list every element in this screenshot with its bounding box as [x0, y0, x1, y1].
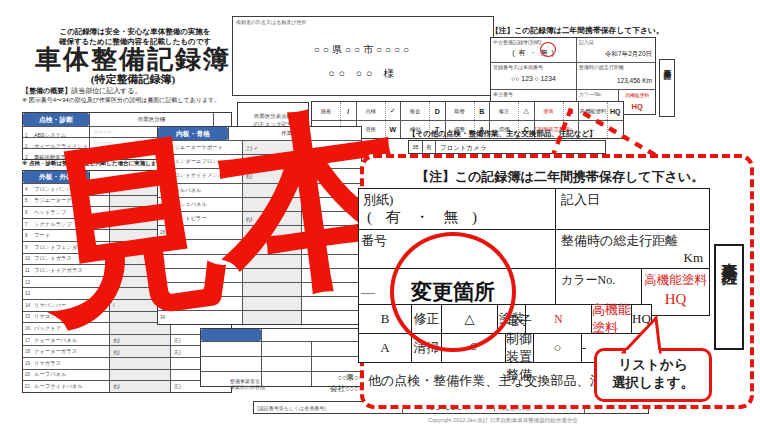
row-number: 7	[25, 222, 34, 227]
used-record-cell: 中古整備記録簿(別紙) ( 有 ・ 無 )	[491, 38, 576, 62]
row-label: クォーターガラス	[34, 348, 77, 355]
keep-note: 【注】この記録簿は二年間携帯保存して下さい。	[491, 25, 664, 36]
callout-number-label: 番号	[361, 232, 387, 250]
mileage-value: 123,456 Km	[617, 77, 652, 84]
mileage-cell: 整備時の総走行距離 123,456 Km	[577, 62, 655, 89]
used-record-label: 中古整備記録簿(別紙)	[493, 39, 541, 45]
business-name-line2: 会社○○○○	[268, 383, 363, 394]
work-mark-1: 右)	[109, 346, 170, 357]
row-number: 21	[25, 384, 34, 389]
business-name-line1: ○○県○○	[268, 372, 363, 383]
office-copy-tab-label: 事業所控	[662, 63, 672, 67]
callout-attachment-label: 別紙)	[363, 191, 393, 209]
reg-no-cell: 登録番号又は車両番号 ○○ 123 ○ 1234	[491, 62, 576, 89]
bubble-tail	[612, 314, 676, 356]
row-label: ルーフサイドパネル	[34, 383, 83, 390]
work-mark-1: 右)	[109, 381, 170, 392]
callout-legend-cell: ○	[533, 334, 581, 362]
row-number: 16	[25, 326, 34, 331]
callout-legend-cell: N	[525, 305, 591, 333]
overview-label: 【整備の概要】	[22, 87, 71, 94]
vehicle-maintenance-record-page: この記録簿は安全・安心な車体整備の実施を 確保するために整備内容を記載したもので…	[0, 0, 760, 448]
used-record-options[interactable]: ( 有 ・ 無 )	[491, 48, 576, 58]
work-mark-2	[301, 311, 361, 324]
row-number: 15	[25, 314, 34, 319]
callout-entry-date-cell: 記入日	[555, 189, 709, 229]
row-number: 14	[25, 303, 34, 308]
sample-watermark: 見本	[26, 97, 413, 334]
work-mark-1	[109, 358, 170, 369]
others-row-no: 35	[409, 141, 422, 153]
callout-mileage-unit: Km	[684, 250, 704, 266]
overview-line: 【整備の概要】該当部位に記入する。	[22, 86, 142, 96]
entry-date-cell: 記入日 令和7年2月20日	[577, 38, 655, 62]
overview-text: 該当部位に記入する。	[71, 87, 142, 94]
callout-keep-note: 【注】この記録簿は二年間携帯保存して下さい。	[416, 168, 704, 186]
customer-box: 依頼者の氏名又は名称及び住所 ○○県○○市○○○○ ○○ ○○ 様	[232, 16, 494, 96]
row-number: 13	[25, 291, 34, 296]
row-number: 18	[25, 349, 34, 354]
callout-color-no-label: カラーNo.	[561, 272, 615, 289]
legend-label: 板金	[401, 102, 430, 120]
reg-no-label: 登録番号又は車両番号	[493, 64, 543, 70]
callout-mileage-cell: 整備時の総走行距離 Km	[555, 230, 709, 268]
row-number: 17	[25, 338, 34, 343]
bubble-text-line1: リストから	[597, 356, 709, 374]
callout-office-copy-label: 事業所控	[719, 250, 740, 258]
callout-legend-cell: A	[359, 334, 411, 362]
row-label: ルーフパネル	[34, 371, 66, 378]
legend-label: 修正	[490, 102, 519, 120]
callout-dash-value: ―	[361, 285, 375, 301]
entry-date-value: 令和7年2月20日	[605, 50, 652, 59]
callout-attachment-cell: 別紙) ( 有 ・ 無 )	[359, 189, 555, 229]
others-row-mark: 有	[422, 141, 435, 153]
callout-legend-cell: 電子制御装置整備	[505, 334, 533, 362]
callout-legend-cell: -	[581, 334, 586, 362]
legend-pair: 板金D	[400, 102, 445, 120]
work-mark-1	[109, 370, 170, 381]
doc-subtitle: (特定整備記録簿)	[14, 72, 252, 87]
callout-paint-grade-label: 高機能塗料	[642, 272, 709, 289]
customer-name: ○○ ○○ 様	[233, 67, 493, 81]
callout-office-copy-tab: 事業所控	[714, 244, 744, 350]
row-label: リヤガラス	[34, 360, 61, 367]
row-number: 10	[25, 256, 34, 261]
list-select-bubble: リストから 選択します。	[594, 348, 712, 402]
legend-pair: 取替B	[445, 102, 490, 120]
customer-address: ○○県○○市○○○○	[233, 43, 493, 57]
business-name: ○○県○○ 会社○○○○	[268, 372, 363, 395]
business-name-label-line2: 事業所の所在地	[230, 384, 265, 390]
legend-label: 取替	[446, 102, 475, 120]
row-number: 6	[25, 210, 34, 215]
customer-box-label: 依頼者の氏名又は名称及び住所	[236, 19, 306, 25]
row-number: 11	[25, 268, 34, 273]
selected-option-circle	[540, 42, 556, 57]
callout-entry-date-label: 記入日	[561, 191, 600, 209]
row-number: 12	[25, 280, 34, 285]
legend-symbol: D	[430, 102, 445, 120]
entry-date-label: 記入日	[579, 39, 594, 45]
business-name-label: 整備事業者名 事業所の所在地	[230, 378, 265, 390]
change-area-circle: 変更箇所	[390, 232, 516, 352]
bubble-text-line2: 選択します。	[597, 374, 709, 392]
callout-attachment-options[interactable]: ( 有 ・ 無 )	[367, 208, 482, 227]
legend-symbol: B	[475, 102, 490, 120]
row-number: 19	[25, 361, 34, 366]
mileage-label: 整備時の総走行距離	[579, 64, 624, 70]
change-area-text: 変更箇所	[411, 278, 495, 306]
row-number: 20	[25, 372, 34, 377]
chassis-no-label: 車台番号	[493, 91, 513, 97]
work-mark-1: 右)	[109, 335, 170, 346]
reg-no-value: ○○ 123 ○ 1234	[491, 75, 576, 82]
row-number: 9	[25, 245, 34, 250]
callout-paint-grade-value: HQ	[642, 291, 709, 308]
doc-note: ※ 図示番号4〜34の部位及び作業区分の説明は裏面に記載してあります。	[22, 96, 254, 104]
zoom-callout: 【注】この記録簿は二年間携帯保存して下さい。 別紙) ( 有 ・ 無 ) 記入日…	[360, 154, 754, 409]
doc-slogan-line1: この記録簿は安全・安心な車体整備の実施を	[30, 27, 240, 37]
copyright: Copyright 2012.Jan.改訂 日本自動車車体整備協同組合連合会	[428, 417, 578, 424]
callout-mileage-label: 整備時の総走行距離	[561, 232, 678, 250]
row-number: 8	[25, 233, 34, 238]
